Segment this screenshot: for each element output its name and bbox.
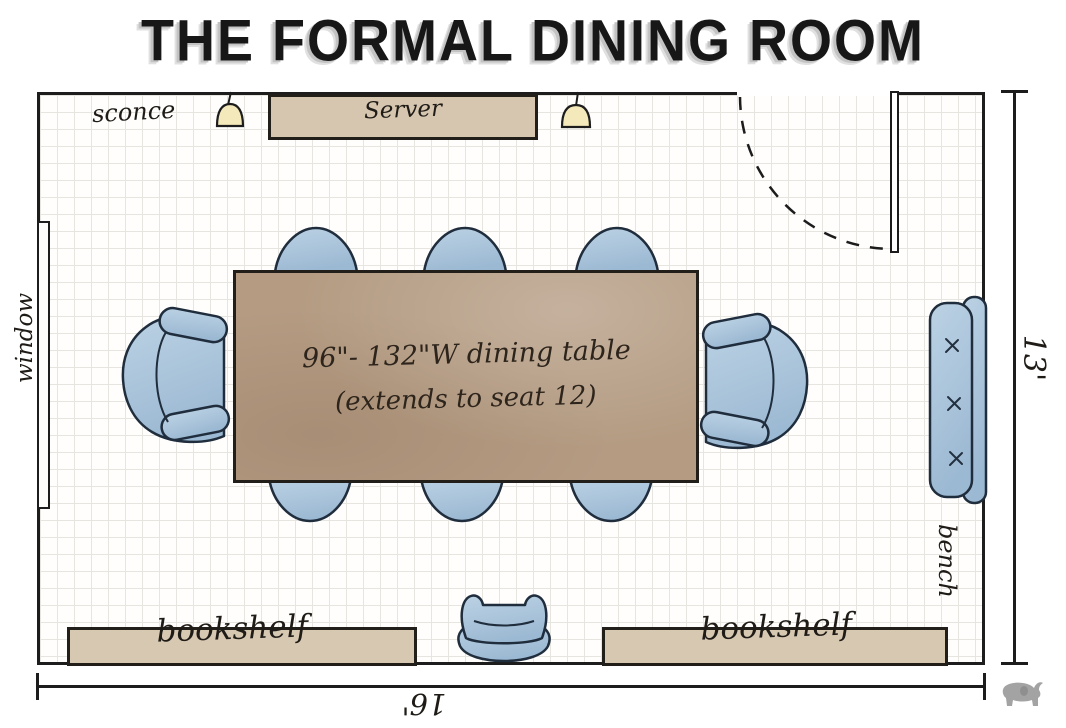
width-dimension-label: 16' — [392, 687, 456, 721]
bookshelf-left-label: bookshelf — [111, 582, 353, 660]
server-label: Server — [271, 92, 536, 127]
bench-label: bench — [931, 511, 961, 611]
page-title: THE FORMAL DINING ROOM — [0, 7, 1066, 78]
dimension-tick — [983, 673, 986, 700]
dimension-cap — [1001, 662, 1028, 665]
door-opening — [737, 88, 893, 96]
dimension-line-width — [37, 685, 985, 688]
table-label-line2: (extends to seat 12) — [335, 381, 597, 418]
dimension-cap — [1001, 90, 1028, 93]
dining-table: 96"- 132"W dining table (extends to seat… — [233, 270, 699, 483]
bookshelf-right-label: bookshelf — [655, 580, 897, 658]
window-label: window — [12, 283, 44, 393]
dimension-tick — [36, 673, 39, 700]
floor-plan: THE FORMAL DINING ROOM — [0, 0, 1066, 728]
elephant-logo-icon — [1003, 682, 1043, 706]
server: Server — [268, 94, 538, 140]
table-label-line1: 96"- 132"W dining table — [301, 335, 631, 375]
depth-dimension-label: 13' — [1011, 330, 1051, 386]
